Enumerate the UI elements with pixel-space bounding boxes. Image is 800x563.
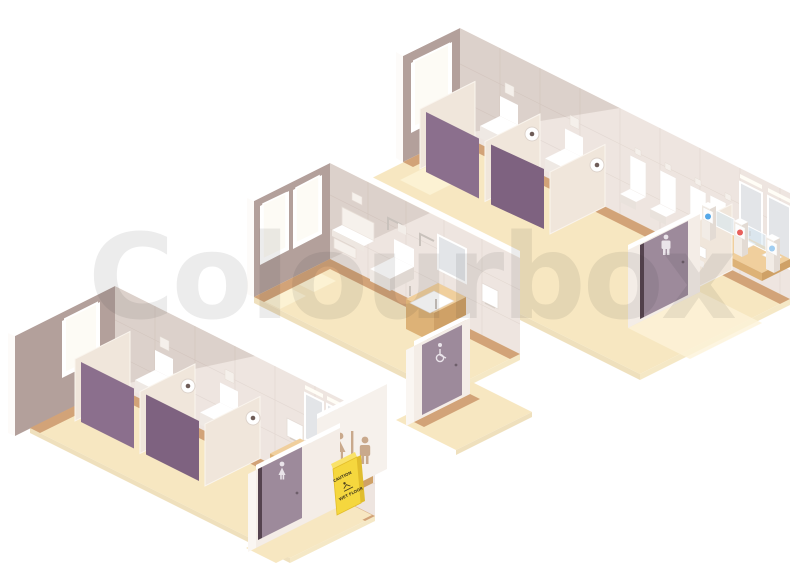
wall-cut-edge: [396, 52, 403, 162]
door-frame: [406, 346, 414, 426]
door-post: [258, 467, 262, 540]
toilet-paper-roll: [590, 158, 604, 172]
gate-pedestal: [734, 218, 748, 257]
door-frame: [248, 470, 256, 552]
stock-image-canvas: CAUTION WET FLOOR Colourbox: [0, 0, 800, 563]
gate-indicator-blue: [705, 214, 711, 220]
gate-pedestal: [766, 234, 780, 273]
isometric-restrooms-illustration: CAUTION WET FLOOR: [0, 0, 800, 563]
toilet-paper-roll: [181, 379, 195, 393]
door-handle: [296, 492, 299, 495]
gate-indicator-red: [737, 230, 743, 236]
wall-cut-edge: [247, 198, 254, 297]
toilet-paper-roll: [525, 127, 539, 141]
gate-pedestal: [702, 202, 716, 241]
door-post: [640, 243, 644, 319]
door-handle: [682, 261, 685, 264]
gate-indicator-blue: [769, 246, 775, 252]
wall-cut-edge: [8, 333, 15, 436]
door-handle: [455, 364, 458, 367]
toilet-paper-roll: [246, 411, 260, 425]
